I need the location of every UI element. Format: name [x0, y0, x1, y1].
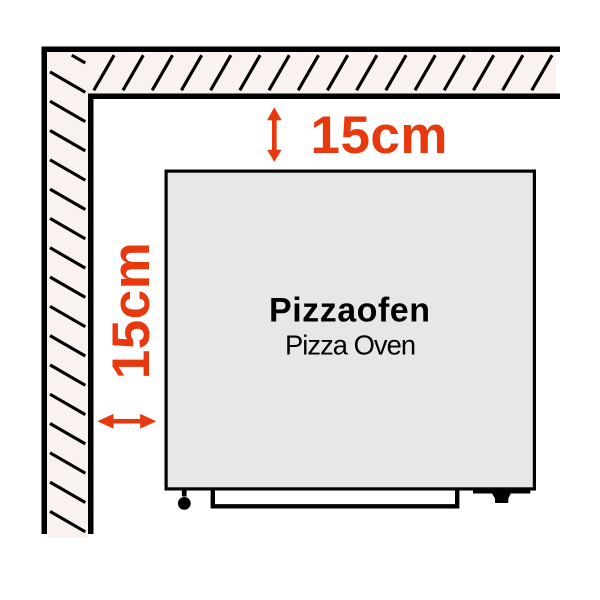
svg-text:15cm: 15cm: [311, 106, 448, 165]
svg-text:15cm: 15cm: [102, 242, 161, 379]
svg-text:Pizzaofen: Pizzaofen: [269, 292, 430, 330]
svg-text:Pizza Oven: Pizza Oven: [285, 330, 416, 361]
